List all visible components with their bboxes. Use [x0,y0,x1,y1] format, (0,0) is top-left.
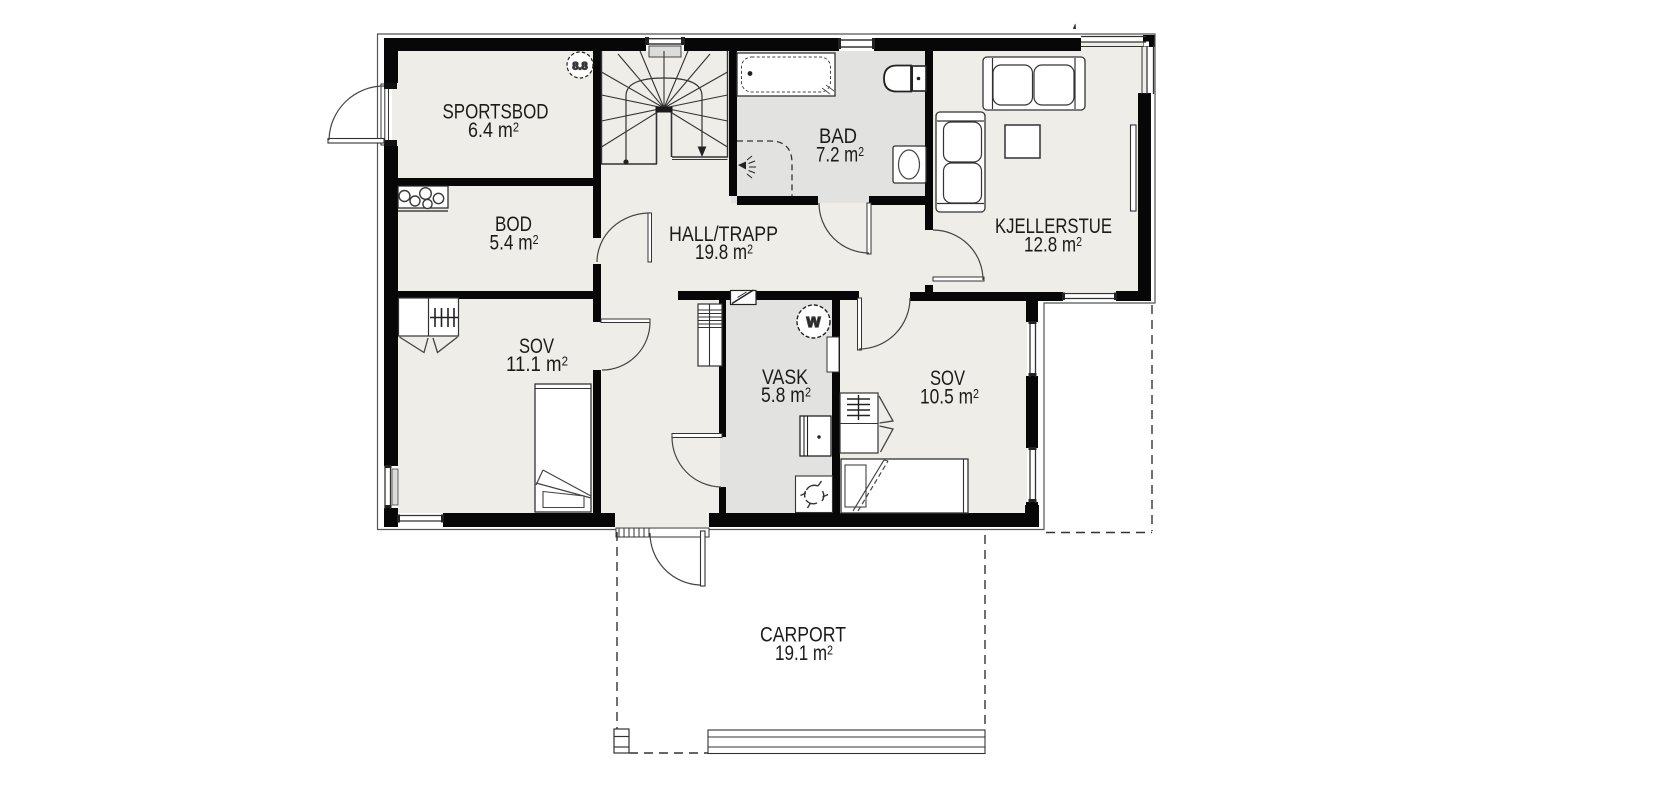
svg-text:19.8 m2: 19.8 m2 [695,241,753,264]
svg-text:5.8 m2: 5.8 m2 [761,384,811,407]
svg-text:11.1 m2: 11.1 m2 [506,353,568,376]
svg-text:10.5 m2: 10.5 m2 [920,386,979,409]
svg-text:6.4 m2: 6.4 m2 [468,119,519,142]
svg-text:5.4 m2: 5.4 m2 [490,232,539,255]
svg-text:12.8 m2: 12.8 m2 [1024,234,1082,257]
svg-text:19.1 m2: 19.1 m2 [775,642,833,665]
svg-text:7.2 m2: 7.2 m2 [816,144,864,167]
svg-text:8.8: 8.8 [572,61,587,73]
svg-text:w: w [805,311,821,331]
